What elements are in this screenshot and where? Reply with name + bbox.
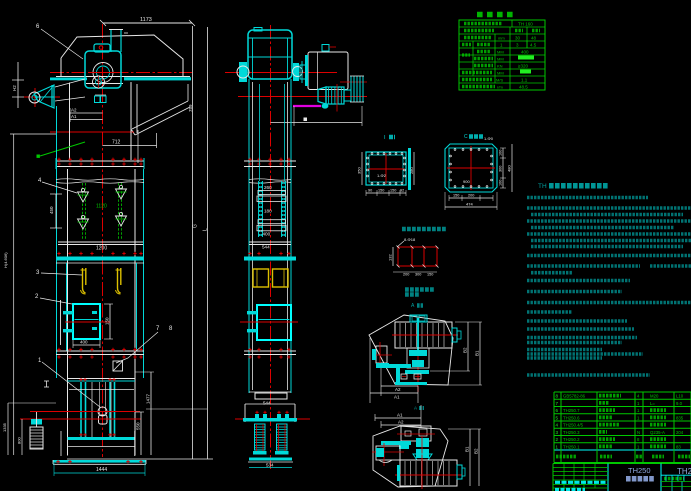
svg-text:474: 474 [466,202,473,207]
svg-text:1444: 1444 [96,467,107,473]
svg-text:150: 150 [390,189,396,193]
svg-text:835: 835 [676,415,684,420]
svg-text:8-Φ18: 8-Φ18 [404,237,416,242]
svg-text:92: 92 [400,189,404,193]
svg-text:TH250: TH250 [628,466,651,475]
svg-text:TH250.4/5: TH250.4/5 [563,423,584,428]
svg-text:TH250.7: TH250.7 [563,408,580,413]
svg-text:1120: 1120 [96,204,107,210]
svg-text:A1: A1 [71,114,77,119]
svg-text:mm: mm [498,36,505,41]
svg-text:GB5782-86: GB5782-86 [563,394,586,399]
svg-text:534: 534 [266,463,274,468]
svg-text:H(4.606): H(4.606) [3,252,8,268]
svg-text:712: 712 [112,140,121,146]
svg-text:A2: A2 [398,420,404,425]
svg-text:150: 150 [378,189,384,193]
svg-text:TH250.3: TH250.3 [563,430,580,435]
svg-text:544: 544 [262,245,270,250]
svg-text:MM: MM [497,50,504,55]
svg-text:A2: A2 [71,108,77,113]
svg-text:9.0: 9.0 [676,401,683,406]
svg-text:A1: A1 [397,413,403,418]
svg-text:1-Φ2: 1-Φ2 [377,173,387,178]
svg-text:TH250.1: TH250.1 [563,444,580,449]
svg-text:1-Φ0: 1-Φ0 [484,136,494,141]
svg-text:1.1: 1.1 [521,78,528,83]
svg-text:280: 280 [409,167,414,174]
svg-text:A: A [414,406,417,411]
svg-text:B2: B2 [474,448,479,454]
svg-text:KN: KN [497,64,503,69]
svg-text:G: G [193,224,199,228]
svg-text:TH250.2: TH250.2 [563,437,580,442]
svg-text:204: 204 [676,430,684,435]
svg-text:400: 400 [80,340,88,345]
svg-text:48: 48 [531,36,537,41]
svg-text:1477: 1477 [146,393,151,404]
svg-text:MM: MM [497,71,504,76]
svg-text:TH250.6: TH250.6 [563,415,580,420]
svg-text:260: 260 [264,185,272,190]
svg-text:4.5: 4.5 [530,43,537,48]
svg-text:200: 200 [403,273,409,277]
svg-text:TH 160: TH 160 [518,22,533,27]
svg-text:Q235-A: Q235-A [650,430,665,435]
svg-text:100: 100 [499,150,503,156]
svg-text:132: 132 [388,254,393,261]
svg-text:48.5: 48.5 [519,85,528,90]
svg-text:L10: L10 [676,394,684,399]
svg-text:≥320: ≥320 [518,64,528,69]
svg-text:MM: MM [497,57,504,62]
svg-text:M/S: M/S [496,78,503,83]
svg-text:H2: H2 [12,85,17,91]
svg-text:150: 150 [453,194,459,198]
svg-text:1200: 1200 [96,246,107,252]
svg-text:B1: B1 [465,446,470,452]
svg-text:450: 450 [49,206,54,214]
svg-text:550: 550 [136,422,141,430]
svg-text:150: 150 [105,317,110,325]
svg-text:200: 200 [468,194,474,198]
svg-text:100: 100 [499,180,503,186]
svg-text:B2: B2 [463,347,468,353]
svg-text:1335: 1335 [2,422,7,432]
svg-text:83: 83 [676,444,681,449]
svg-text:800: 800 [17,437,22,444]
svg-text:300: 300 [499,166,503,172]
svg-text:480: 480 [507,165,512,172]
svg-text:400: 400 [521,50,529,55]
svg-text:A1: A1 [394,395,400,400]
svg-text:759: 759 [188,104,193,112]
svg-text:180: 180 [264,209,272,214]
svg-text:TH2: TH2 [677,467,691,476]
svg-text:90: 90 [368,189,372,193]
svg-text:r/m: r/m [497,85,503,90]
svg-text:1173: 1173 [140,17,152,23]
svg-text:30: 30 [515,36,521,41]
svg-text:400: 400 [263,232,271,237]
svg-text:900: 900 [463,179,470,184]
svg-text:L=: L= [650,401,655,406]
svg-text:L: L [202,228,208,231]
svg-text:300: 300 [415,273,421,277]
svg-text:B1: B1 [475,350,480,356]
svg-text:C: C [464,134,468,140]
svg-text:M20: M20 [650,394,659,399]
svg-text:TH: TH [538,183,547,190]
svg-text:N: N [637,430,640,435]
svg-text:150: 150 [427,273,433,277]
svg-text:350: 350 [357,167,362,174]
svg-text:A2: A2 [395,387,401,392]
svg-text:544: 544 [263,401,271,406]
